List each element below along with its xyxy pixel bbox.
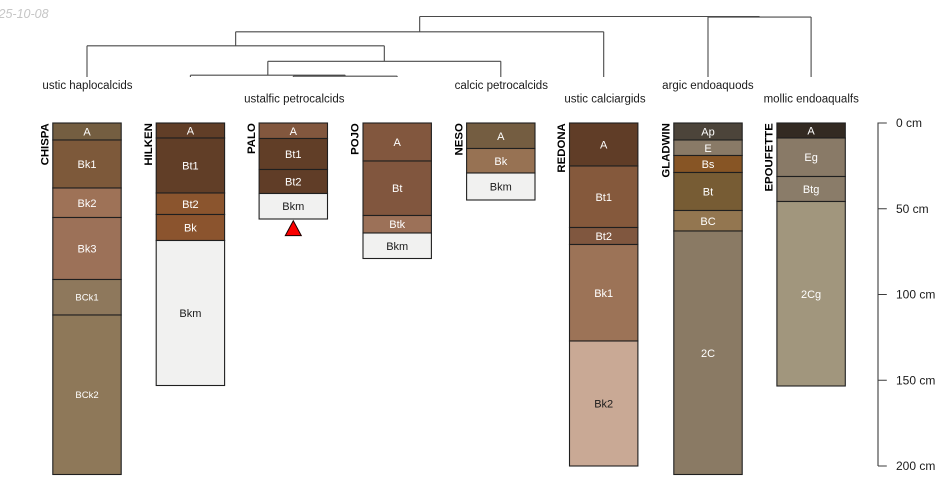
svg-text:EPOUFETTE: EPOUFETTE [764,123,776,192]
svg-text:Bk: Bk [494,156,507,168]
svg-text:mollic endoaqualfs: mollic endoaqualfs [764,94,860,106]
svg-text:BC: BC [700,216,715,228]
svg-text:200 cm: 200 cm [896,459,935,473]
svg-text:Bt: Bt [392,183,402,195]
svg-text:Bkm: Bkm [282,201,304,213]
svg-text:REDONA: REDONA [556,123,568,172]
svg-text:Bkm: Bkm [490,182,512,194]
svg-text:A: A [290,126,298,138]
svg-text:Bt1: Bt1 [182,161,199,173]
svg-text:Bk2: Bk2 [594,399,613,411]
svg-text:Btk: Btk [389,219,405,231]
svg-text:CHISPA: CHISPA [40,123,52,165]
svg-text:50 cm: 50 cm [896,202,929,216]
svg-text:POJO: POJO [350,123,362,155]
svg-text:BCk1: BCk1 [75,293,98,304]
svg-text:Bk: Bk [184,223,197,235]
svg-text:25-10-08: 25-10-08 [0,7,49,21]
svg-text:argic endoaquods: argic endoaquods [662,80,754,92]
svg-text:A: A [497,131,505,143]
svg-text:Btg: Btg [803,184,820,196]
svg-text:Bkm: Bkm [386,241,408,253]
svg-text:NESO: NESO [453,123,465,155]
svg-text:Ap: Ap [701,127,714,139]
svg-text:2Cg: 2Cg [801,289,821,301]
svg-text:2C: 2C [701,348,715,360]
svg-text:Bs: Bs [702,159,715,171]
svg-text:A: A [807,126,815,138]
svg-text:ustic calciargids: ustic calciargids [564,94,645,106]
svg-text:A: A [600,140,608,152]
svg-text:E: E [704,143,711,155]
svg-text:100 cm: 100 cm [896,288,935,302]
svg-text:150 cm: 150 cm [896,373,935,387]
svg-text:A: A [83,127,91,139]
svg-text:Eg: Eg [804,152,817,164]
svg-text:BCk2: BCk2 [75,390,98,401]
svg-text:Bt: Bt [703,187,713,199]
svg-text:Bt2: Bt2 [285,177,302,189]
svg-text:HILKEN: HILKEN [143,123,155,165]
svg-text:Bk1: Bk1 [78,159,97,171]
svg-text:Bt1: Bt1 [595,192,612,204]
svg-text:ustalfic petrocalcids: ustalfic petrocalcids [244,94,345,106]
svg-text:Bt2: Bt2 [182,199,199,211]
svg-text:Bk2: Bk2 [78,198,97,210]
svg-text:ustic haplocalcids: ustic haplocalcids [42,80,132,92]
svg-text:Bk1: Bk1 [594,288,613,300]
svg-text:A: A [394,137,402,149]
svg-text:Bk3: Bk3 [78,244,97,256]
svg-text:Bt1: Bt1 [285,149,302,161]
svg-text:Bt2: Bt2 [595,231,612,243]
svg-text:GLADWIN: GLADWIN [661,123,673,177]
svg-text:Bkm: Bkm [179,308,201,320]
svg-text:0 cm: 0 cm [896,116,922,130]
svg-text:PALO: PALO [246,123,258,154]
svg-text:calcic petrocalcids: calcic petrocalcids [455,80,549,92]
svg-text:A: A [187,126,195,138]
